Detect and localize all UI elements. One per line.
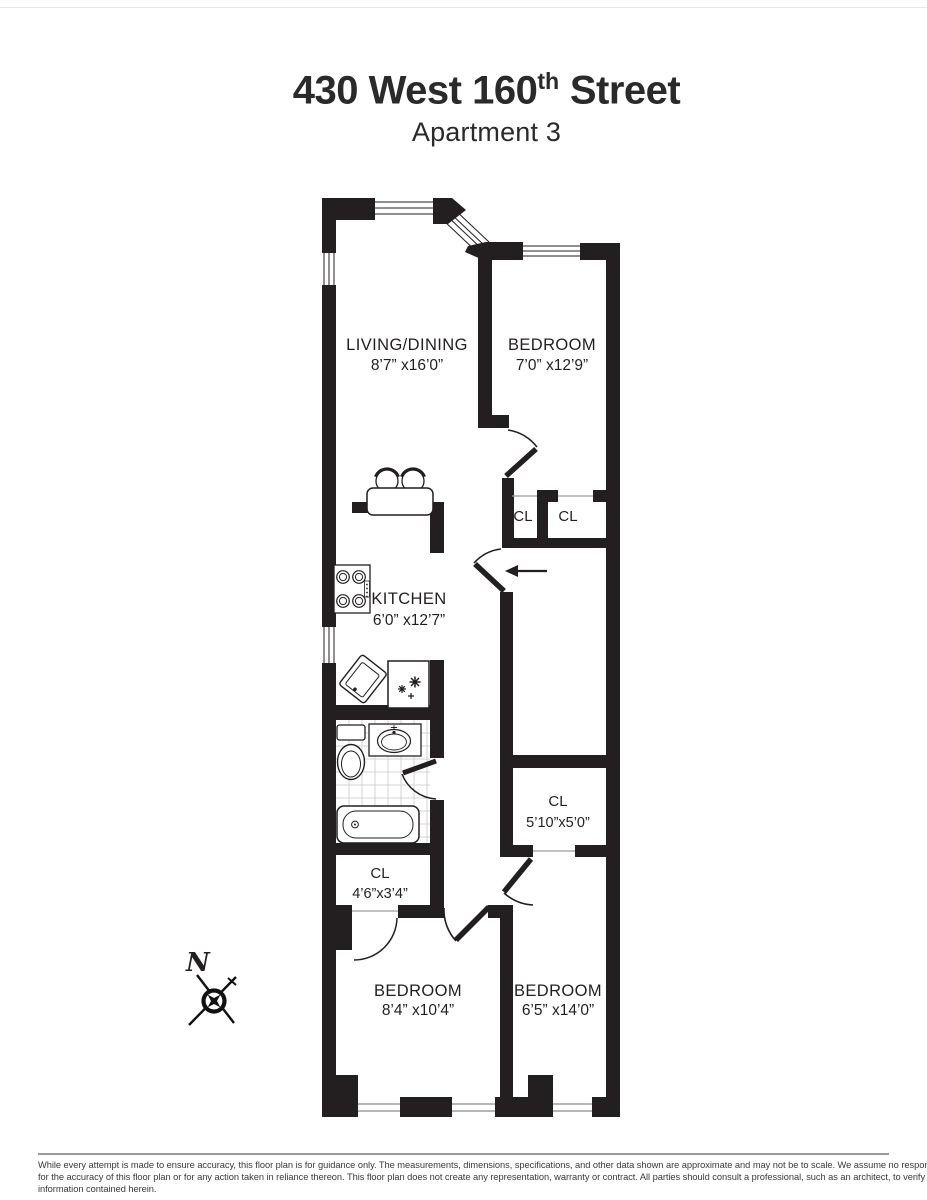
- closet-large-label: CL: [548, 793, 567, 810]
- compass-icon: [189, 975, 236, 1025]
- bedroom-top-door-icon: [506, 430, 537, 476]
- stove-icon: [334, 565, 370, 613]
- kitchen-dims: 6’0” x12’7”: [373, 612, 445, 629]
- bedroom-bottom-right-door-icon: [504, 859, 533, 905]
- wall-corner-bedroom: [465, 242, 523, 260]
- bedroom-top-label: BEDROOM: [508, 336, 596, 354]
- closet-large-dims: 5’10”x5’0”: [526, 815, 590, 831]
- windows: [320, 196, 592, 1111]
- vanity-sink-icon: [369, 724, 421, 756]
- entry-door-icon: [474, 549, 504, 591]
- disclaimer: While every attempt is made to ensure ac…: [38, 1153, 889, 1195]
- bedroom-bottom-left-label: BEDROOM: [374, 982, 462, 1000]
- living-dining-label: LIVING/DINING: [346, 336, 468, 354]
- disclaimer-line: information contained herein.: [38, 1183, 889, 1195]
- disclaimer-line: for the accuracy of this floor plan or f…: [38, 1171, 889, 1183]
- living-dining-dims: 8’7” x16’0”: [371, 357, 443, 374]
- closet-small-dims: 4’6”x3’4”: [352, 886, 408, 902]
- toilet-icon: [337, 725, 365, 780]
- wall-corner-top: [433, 198, 466, 224]
- closet-hall-right-label: CL: [558, 508, 577, 525]
- window-living-top-icon: [375, 196, 433, 222]
- closet-small-label: CL: [370, 865, 389, 882]
- window-living-left-icon: [320, 253, 337, 285]
- window-bedroom-top-icon: [523, 241, 580, 262]
- entry-arrow-icon: [505, 565, 547, 577]
- bathroom-door-icon: [402, 761, 436, 799]
- bedroom-bottom-left-dims: 8’4” x10’4”: [382, 1002, 454, 1019]
- refrigerator-icon: [388, 661, 429, 708]
- kitchen-label: KITCHEN: [371, 590, 446, 608]
- closet-small-door-icon: [354, 918, 397, 960]
- window-kitchen-left-icon: [320, 627, 337, 663]
- compass-north-label: N: [185, 948, 211, 978]
- bathroom-fixtures: [337, 724, 421, 843]
- kitchen-fixtures: [334, 469, 433, 708]
- bedroom-top-dims: 7’0” x12’9”: [516, 357, 588, 374]
- windows-bottom-icon: [358, 1104, 592, 1111]
- closet-hall-left-label: CL: [513, 508, 532, 525]
- bedroom-bottom-right-dims: 6’5” x14’0”: [522, 1002, 594, 1019]
- bathtub-icon: [337, 806, 419, 843]
- disclaimer-line: While every attempt is made to ensure ac…: [38, 1159, 889, 1171]
- floor-plan: LIVING/DINING 8’7” x16’0” BEDROOM 7’0” x…: [0, 0, 927, 1200]
- breakfast-counter-icon: [367, 488, 433, 515]
- bedroom-bottom-right-label: BEDROOM: [514, 982, 602, 1000]
- kitchen-sink-icon: [339, 654, 388, 704]
- bedroom-bottom-left-door-icon: [444, 907, 489, 941]
